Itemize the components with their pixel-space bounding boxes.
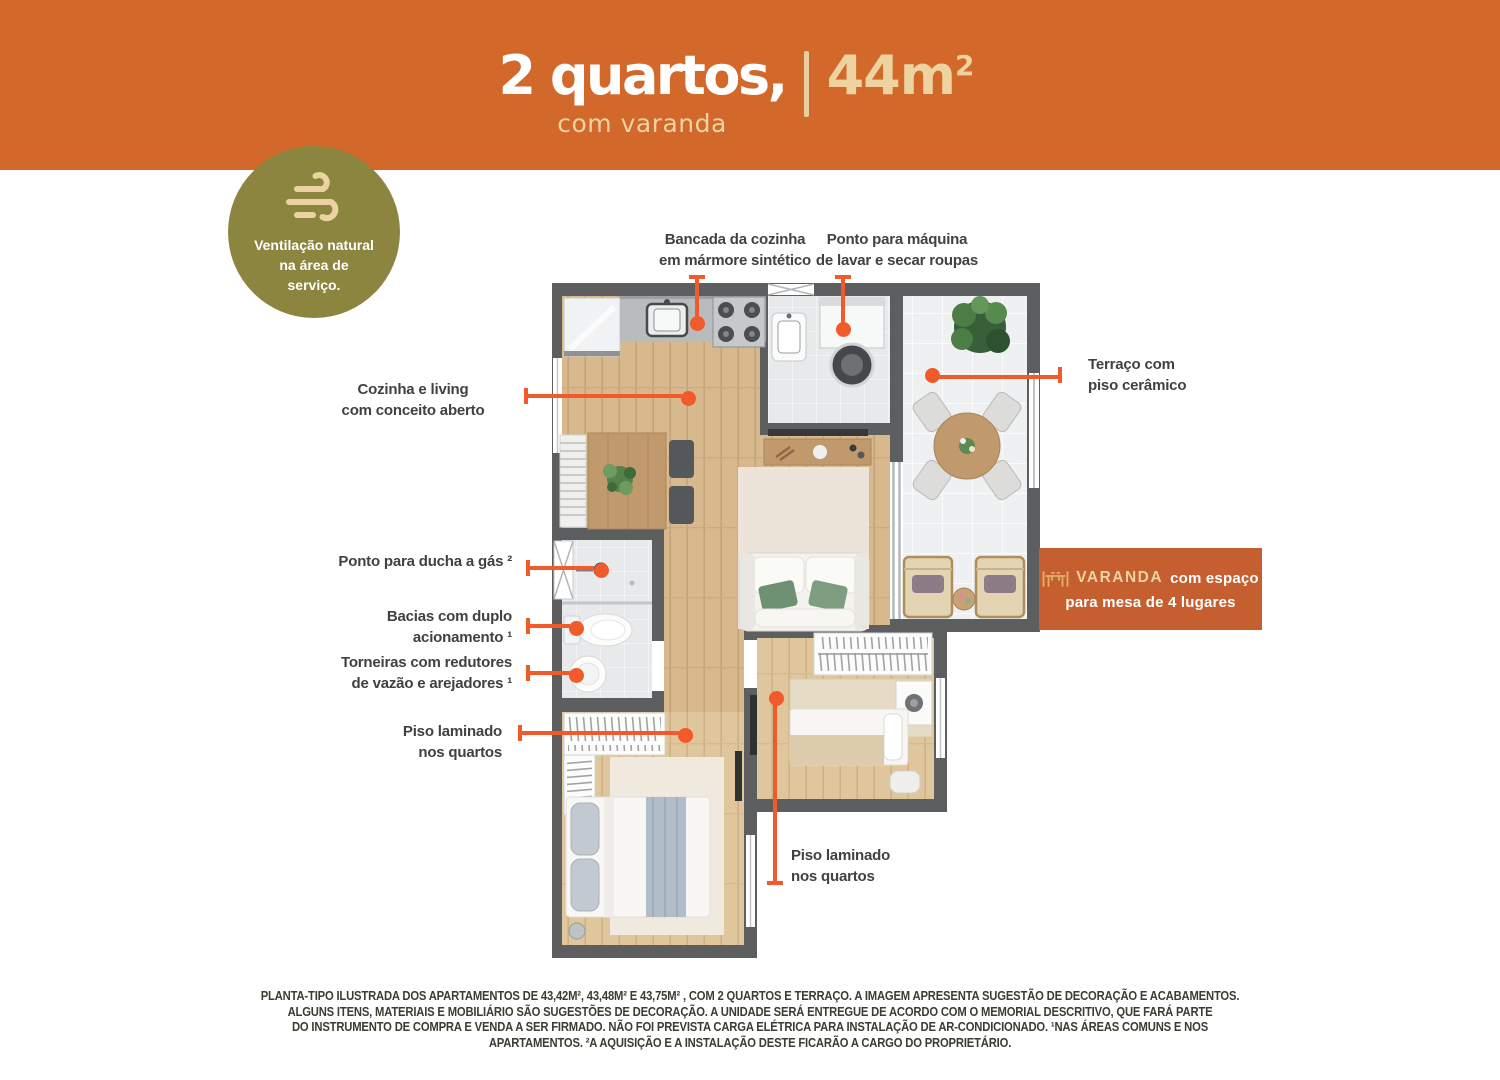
footer-disclaimer: PLANTA-TIPO ILUSTRADA DOS APARTAMENTOS D… (75, 989, 1425, 1051)
leader-cozinha-dot (681, 391, 696, 406)
leader-bancada-line (695, 277, 699, 317)
footer-line-1: PLANTA-TIPO ILUSTRADA DOS APARTAMENTOS D… (75, 989, 1425, 1005)
leader-bacias-line (530, 624, 570, 628)
callout-ducha: Ponto para ducha a gás ² (282, 551, 512, 572)
footer-line-4: APARTAMENTOS. ²A AQUISIÇÃO E A INSTALAÇÃ… (75, 1036, 1425, 1052)
header-title: 2 quartos, com varanda 44m2 (0, 48, 1486, 138)
title-left: 2 quartos, com varanda (498, 48, 785, 138)
title-divider (804, 51, 809, 117)
callout-torneiras: Torneiras com redutores de vazão e areja… (262, 652, 512, 694)
varanda-text-2: para mesa de 4 lugares (1065, 594, 1235, 611)
hall-floor (664, 626, 744, 712)
leader-maquina-line (841, 277, 845, 324)
leader-bancada-dot (690, 316, 705, 331)
leader-piso-esq-dot (678, 728, 693, 743)
callout-piso-esq: Piso laminado nos quartos (292, 721, 502, 763)
flyer-page: 2 quartos, com varanda 44m2 Ventilação n… (0, 0, 1500, 1080)
leader-terraco-dot (925, 368, 940, 383)
leader-piso-dir-line (773, 703, 777, 883)
page-subtitle: com varanda (498, 109, 785, 138)
varanda-highlight-box: VARANDA com espaço para mesa de 4 lugare… (1039, 548, 1262, 630)
callout-maquina: Ponto para máquina de lavar e secar roup… (792, 229, 1002, 271)
varanda-text-1: com espaço (1170, 570, 1259, 587)
footer-line-2: ALGUNS ITENS, MATERIAIS E MOBILIÁRIO SÃO… (75, 1005, 1425, 1021)
area-superscript: 2 (955, 49, 973, 82)
callout-terraco: Terraço com piso cerâmico (1088, 354, 1268, 396)
leader-piso-dir-cap (767, 881, 783, 885)
leader-terraco-line (938, 375, 1058, 379)
page-title: 2 quartos, (498, 48, 785, 105)
leader-bacias-dot (569, 621, 584, 636)
wind-icon (281, 170, 347, 228)
leader-terraco-cap (1058, 367, 1062, 383)
leader-cozinha-line (528, 394, 682, 398)
badge-text: Ventilação natural na área de serviço. (254, 235, 374, 295)
ventilation-badge: Ventilação natural na área de serviço. (228, 146, 400, 318)
footer-line-3: DO INSTRUMENTO DE COMPRA E VENDA A SER F… (75, 1020, 1425, 1036)
area-value: 44m2 (827, 48, 974, 105)
leader-ducha-line (530, 566, 594, 570)
varanda-label: VARANDA (1076, 569, 1163, 587)
callout-piso-dir: Piso laminado nos quartos (791, 845, 1001, 887)
table-chairs-icon (1042, 568, 1069, 589)
leader-torneiras-line (530, 671, 570, 675)
callout-cozinha: Cozinha e living com conceito aberto (308, 379, 518, 421)
leader-ducha-dot (594, 563, 609, 578)
callout-bacias: Bacias com duplo acionamento ¹ (302, 606, 512, 648)
leader-torneiras-dot (569, 668, 584, 683)
varanda-row1: VARANDA com espaço (1042, 568, 1259, 589)
leader-piso-esq-line (522, 731, 680, 735)
leader-maquina-dot (836, 322, 851, 337)
